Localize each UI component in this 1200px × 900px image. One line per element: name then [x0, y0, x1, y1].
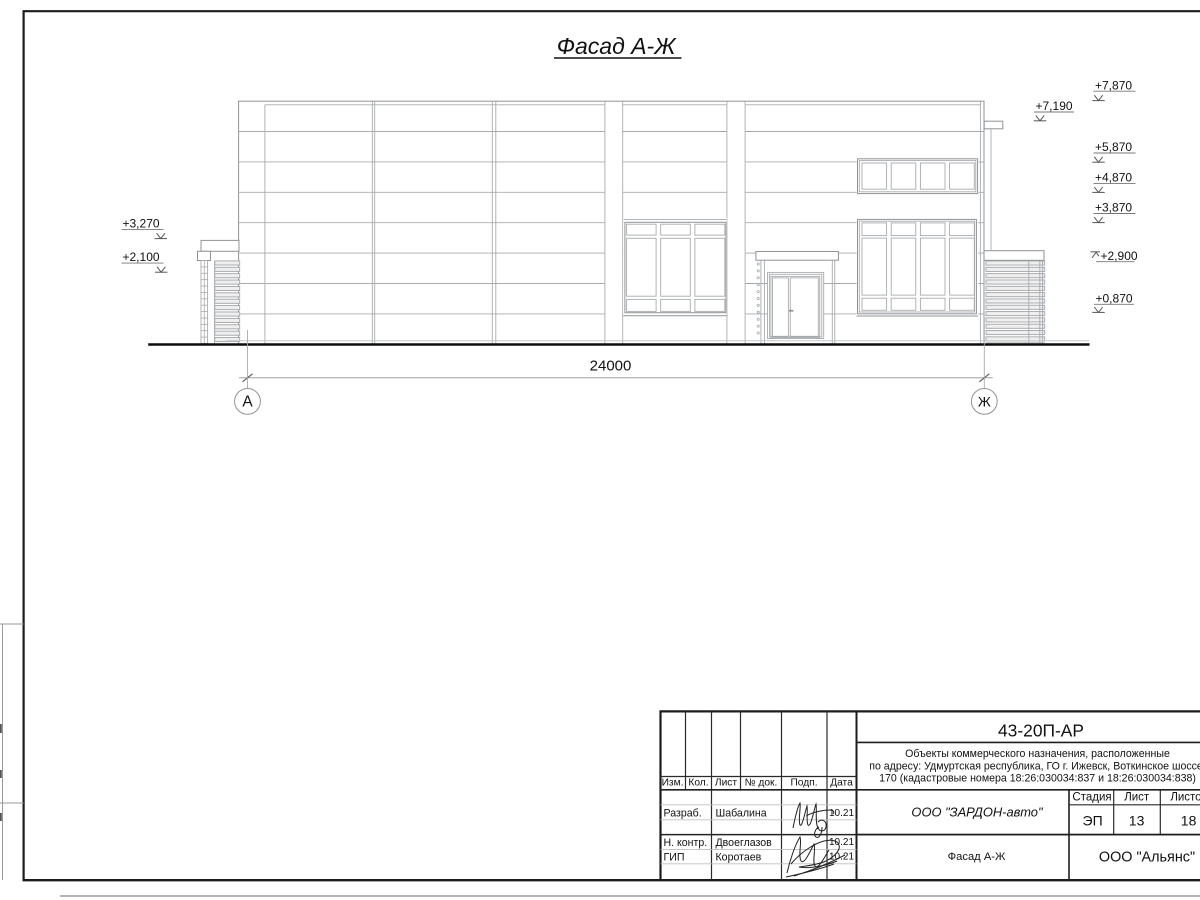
svg-text:+2,100: +2,100: [123, 250, 160, 264]
svg-text:+3,870: +3,870: [1095, 201, 1132, 215]
svg-text:+3,270: +3,270: [123, 217, 160, 231]
svg-text:+7,190: +7,190: [1036, 99, 1073, 113]
svg-text:+0,870: +0,870: [1096, 291, 1133, 305]
svg-text:по адресу: Удмуртская республи: по адресу: Удмуртская республика, ГО г. …: [869, 760, 1200, 772]
svg-text:Листов: Листов: [1170, 791, 1200, 803]
svg-text:10.21: 10.21: [829, 837, 854, 848]
svg-text:Ж: Ж: [978, 393, 991, 409]
svg-text:170 (кадастровые номера 18:26:: 170 (кадастровые номера 18:26:030034:837…: [879, 773, 1196, 785]
svg-text:18: 18: [1181, 812, 1197, 828]
svg-text:Изм.: Изм.: [662, 778, 684, 789]
svg-text:Дата: Дата: [830, 778, 853, 789]
svg-text:Лист: Лист: [1124, 791, 1150, 803]
svg-text:Шабалина: Шабалина: [716, 807, 767, 819]
svg-text:Лист: Лист: [715, 778, 737, 789]
svg-text:ООО "Альянс": ООО "Альянс": [1099, 849, 1195, 865]
svg-text:13: 13: [1129, 812, 1145, 828]
svg-text:Стадия: Стадия: [1072, 791, 1111, 803]
svg-text:Фасад А-Ж: Фасад А-Ж: [557, 33, 677, 59]
svg-text:ЭП: ЭП: [1083, 812, 1103, 828]
svg-text:Двоеглазов: Двоеглазов: [716, 837, 773, 849]
svg-text:Подп.: Подп.: [790, 778, 817, 789]
svg-text:Фасад А-Ж: Фасад А-Ж: [948, 851, 1006, 863]
svg-text:Н. контр.: Н. контр.: [664, 837, 708, 849]
svg-text:Разраб.: Разраб.: [664, 807, 702, 819]
svg-text:Объекты коммерческого назначен: Объекты коммерческого назначения, распол…: [905, 748, 1170, 760]
svg-text:ГИП: ГИП: [664, 851, 685, 863]
svg-text:Коротаев: Коротаев: [716, 851, 762, 863]
svg-text:+7,870: +7,870: [1095, 78, 1132, 92]
svg-text:43-20П-АР: 43-20П-АР: [998, 721, 1084, 741]
svg-text:10.21: 10.21: [829, 808, 854, 819]
svg-text:Кол.: Кол.: [688, 778, 708, 789]
svg-text:ООО "ЗАРДОН-авто": ООО "ЗАРДОН-авто": [911, 805, 1044, 820]
svg-text:№ док.: № док.: [745, 778, 778, 789]
svg-text:+4,870: +4,870: [1095, 171, 1132, 185]
svg-text:+2,900: +2,900: [1101, 249, 1138, 263]
svg-text:+5,870: +5,870: [1095, 140, 1132, 154]
svg-text:А: А: [242, 394, 253, 411]
svg-text:24000: 24000: [590, 357, 632, 374]
